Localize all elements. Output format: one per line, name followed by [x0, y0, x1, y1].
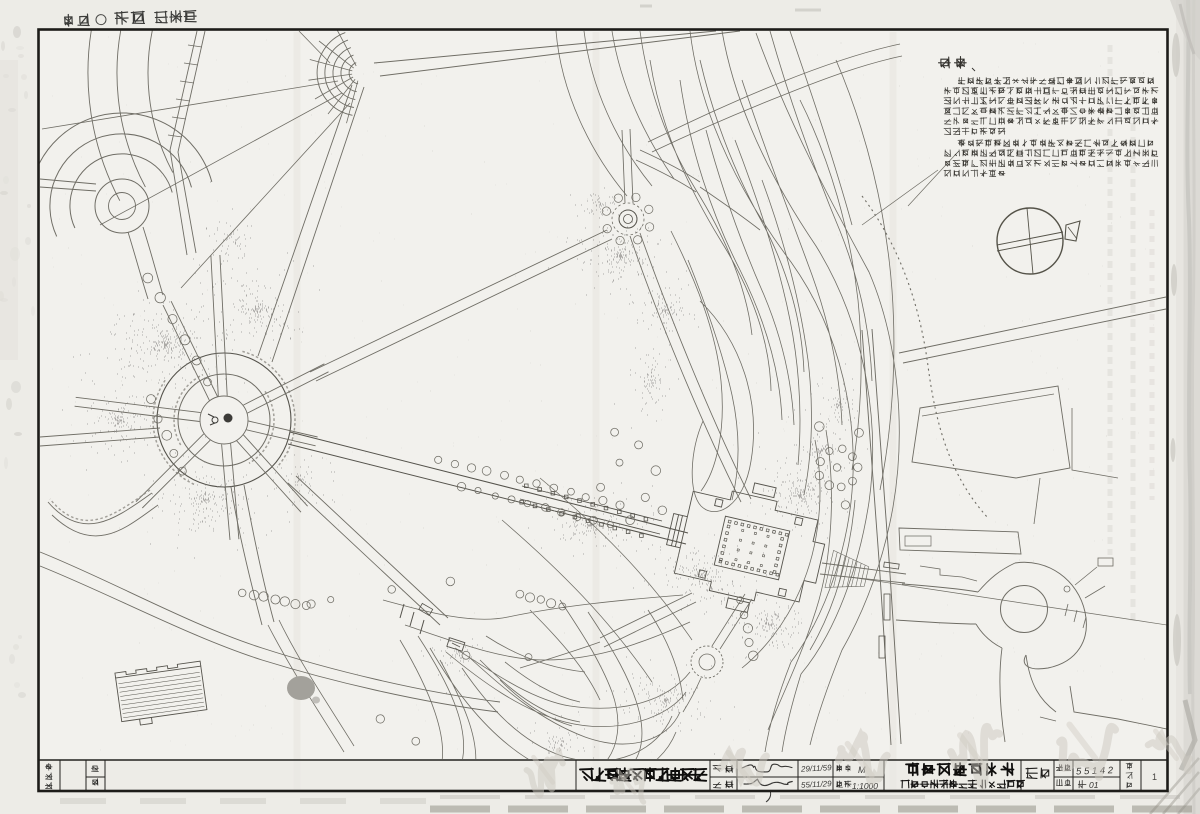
svg-text:1: 1 [1152, 772, 1157, 782]
svg-text:55/11/29: 55/11/29 [801, 779, 833, 790]
svg-text:01: 01 [1089, 780, 1099, 790]
svg-text:29/11/59: 29/11/59 [800, 763, 833, 774]
